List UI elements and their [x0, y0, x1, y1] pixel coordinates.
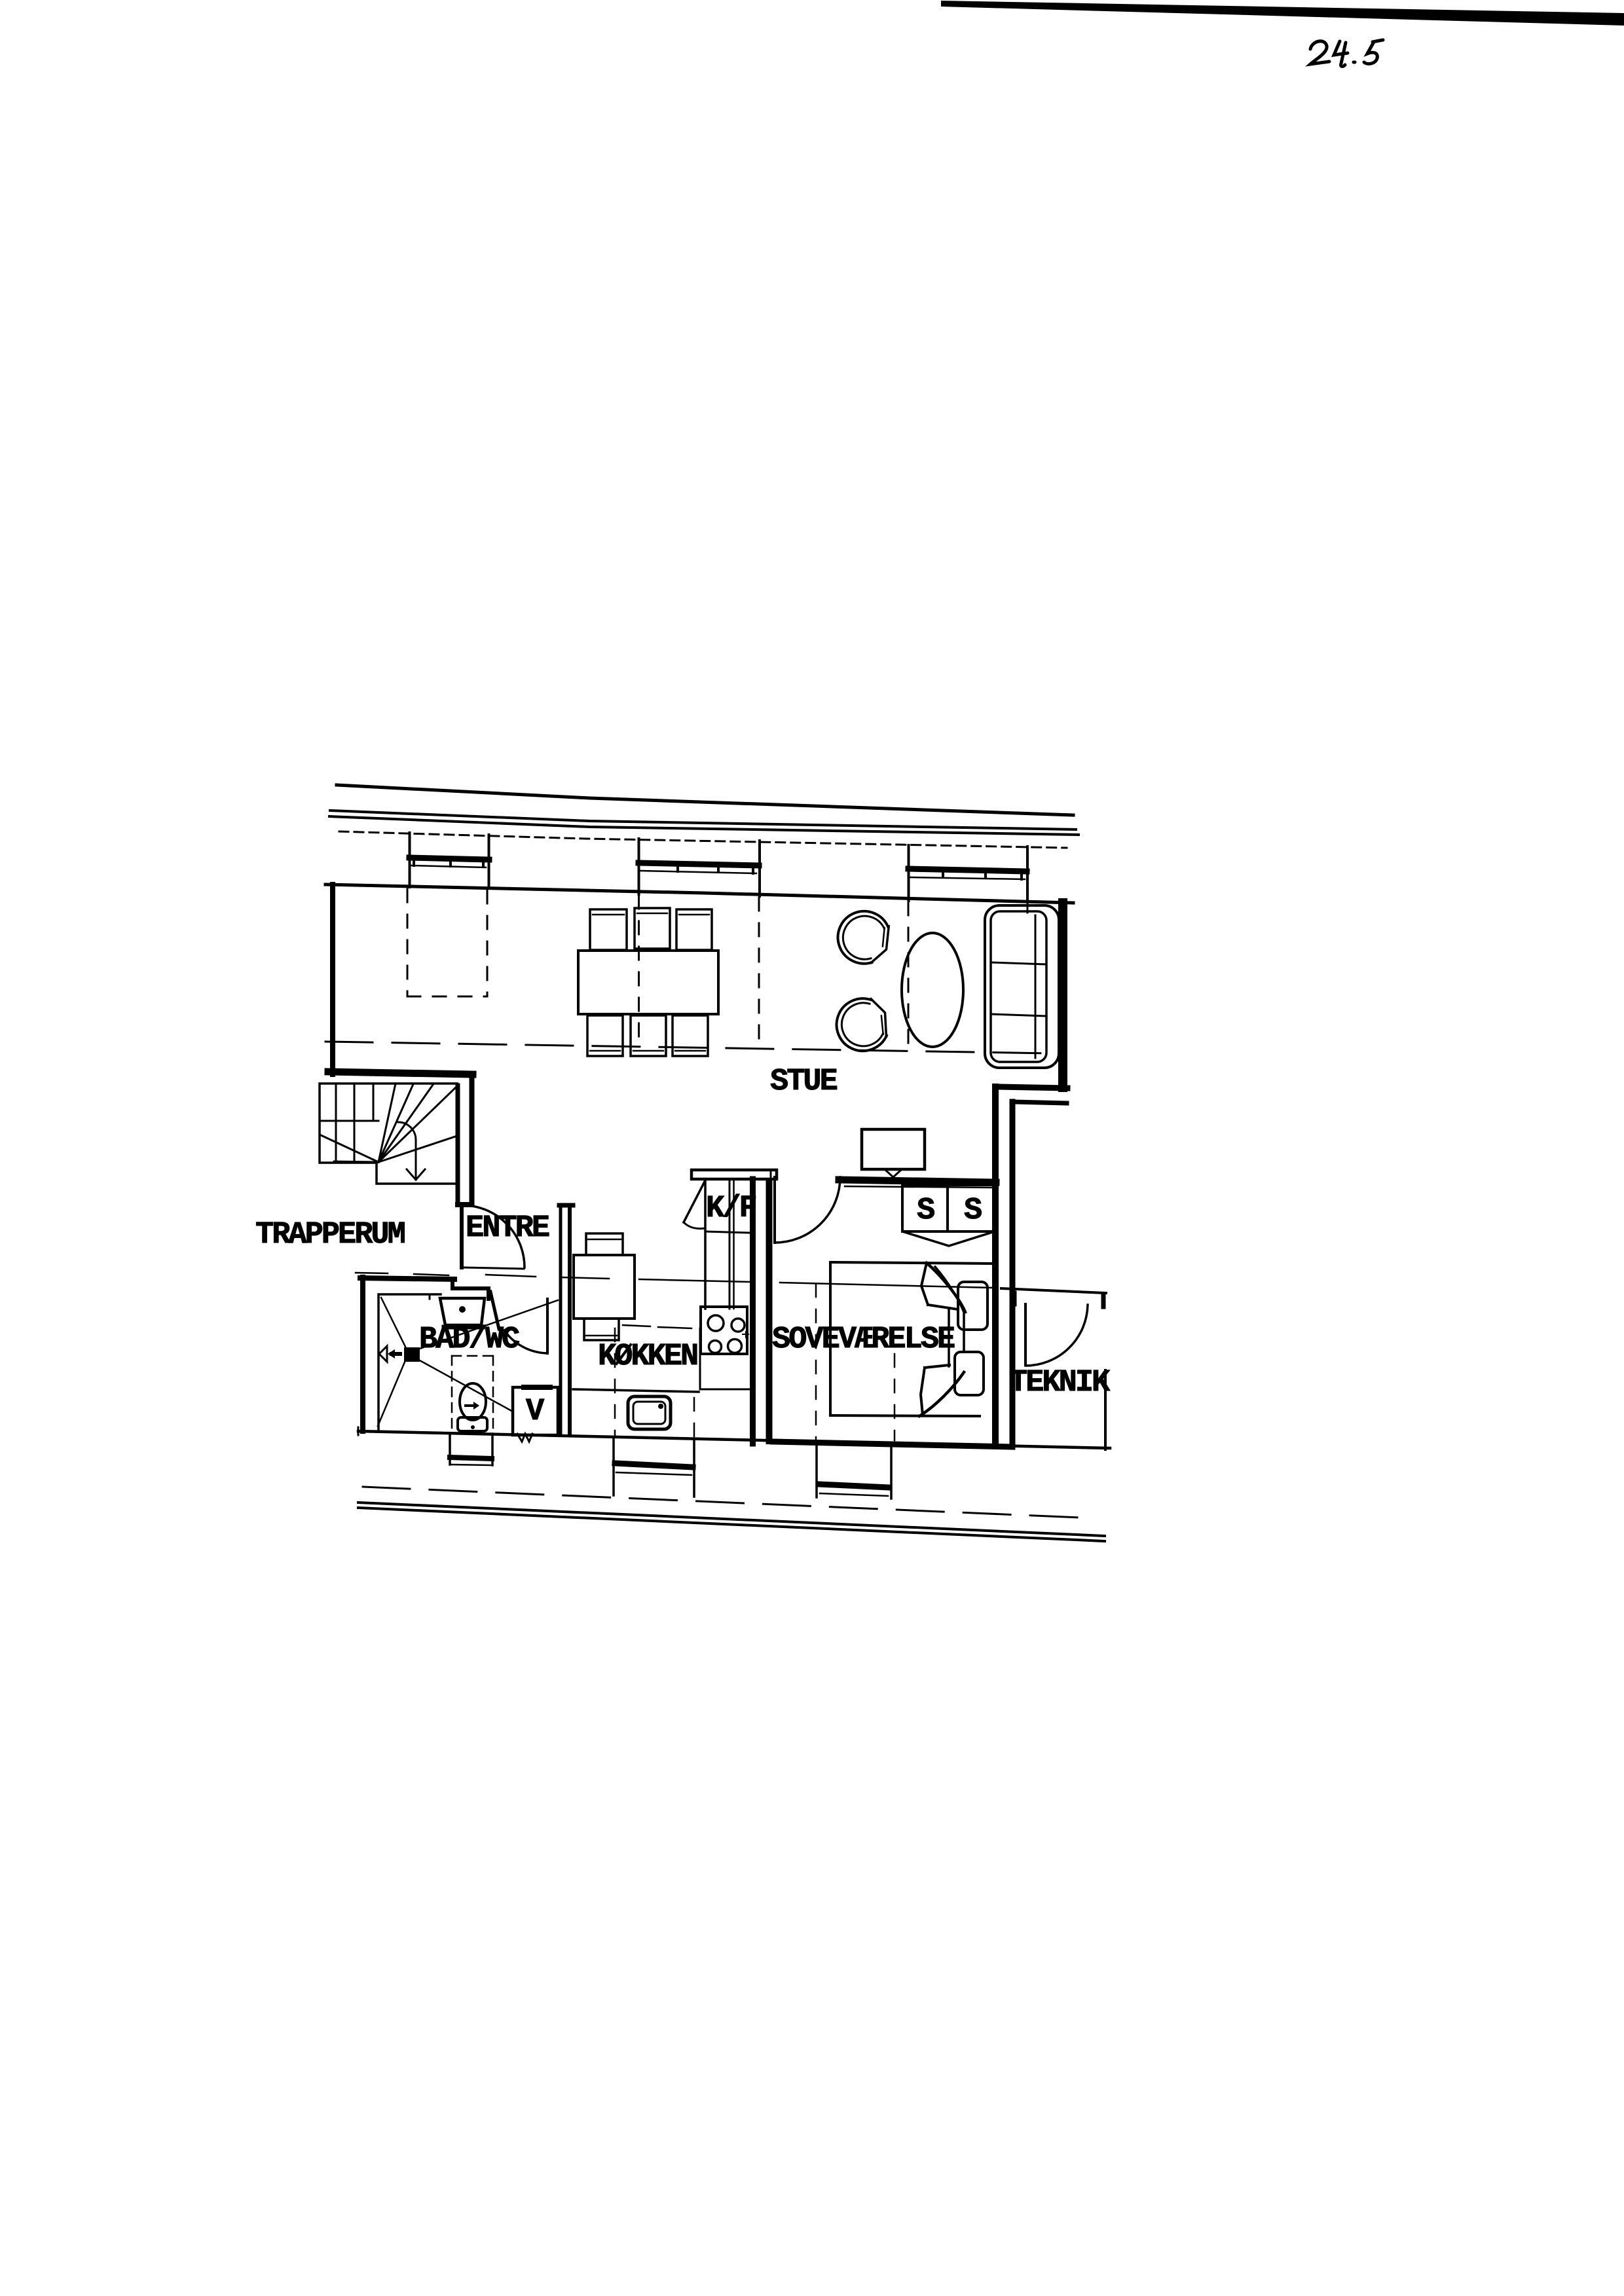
svg-text:V: V — [526, 1394, 545, 1429]
svg-text:TRAPPERUM: TRAPPERUM — [255, 1218, 405, 1252]
svg-text:KØKKEN: KØKKEN — [598, 1339, 697, 1374]
svg-text:BAD/WC: BAD/WC — [419, 1322, 519, 1357]
svg-text:STUE: STUE — [770, 1065, 838, 1099]
svg-text:S: S — [964, 1194, 982, 1228]
svg-text:SOVEVÆRELSE: SOVEVÆRELSE — [772, 1322, 955, 1357]
svg-text:TEKNIK: TEKNIK — [1009, 1366, 1111, 1400]
svg-text:ENTRE: ENTRE — [466, 1211, 549, 1246]
svg-text:K/F: K/F — [706, 1192, 756, 1226]
svg-text:S: S — [917, 1194, 934, 1228]
